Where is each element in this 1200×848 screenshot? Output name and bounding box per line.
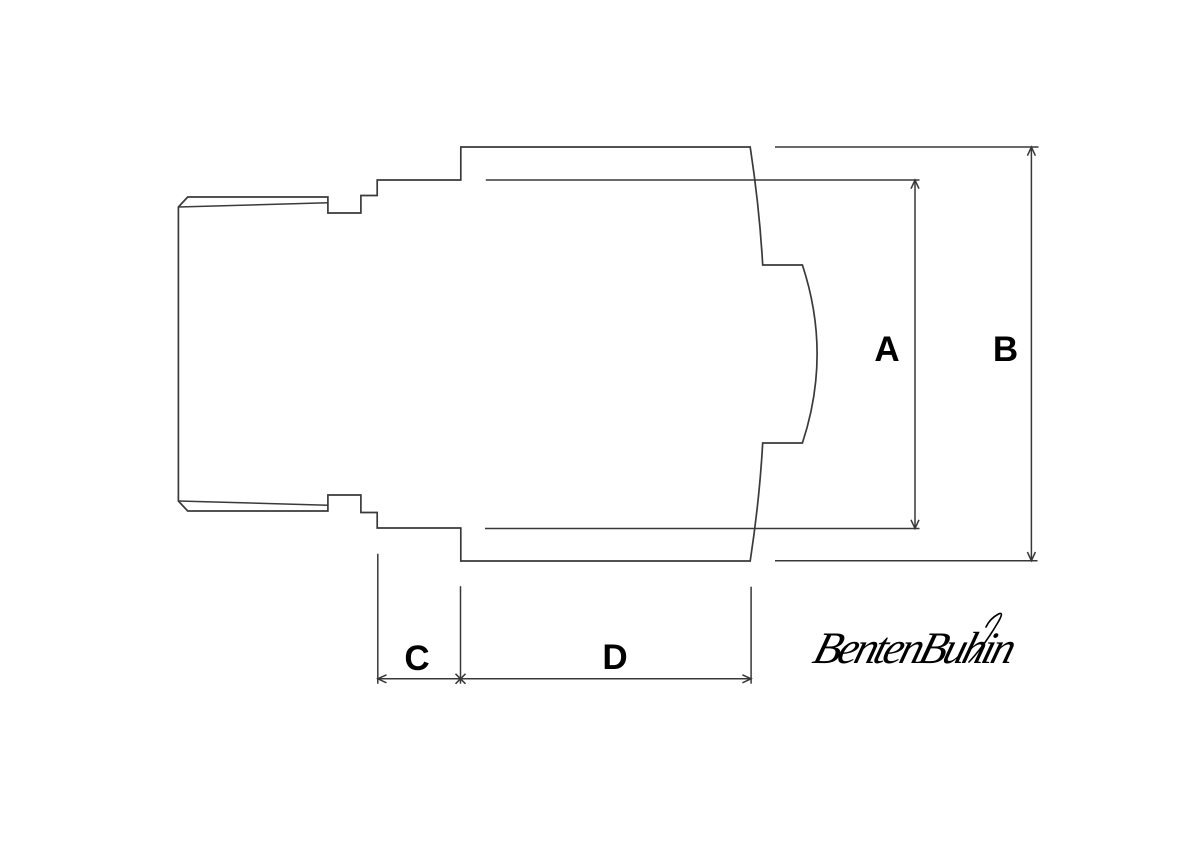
svg-text:C: C bbox=[404, 639, 429, 678]
svg-text:BentenBuhin: BentenBuhin bbox=[808, 623, 1022, 673]
svg-text:D: D bbox=[602, 638, 627, 677]
svg-text:B: B bbox=[993, 330, 1018, 369]
svg-text:A: A bbox=[874, 330, 899, 369]
